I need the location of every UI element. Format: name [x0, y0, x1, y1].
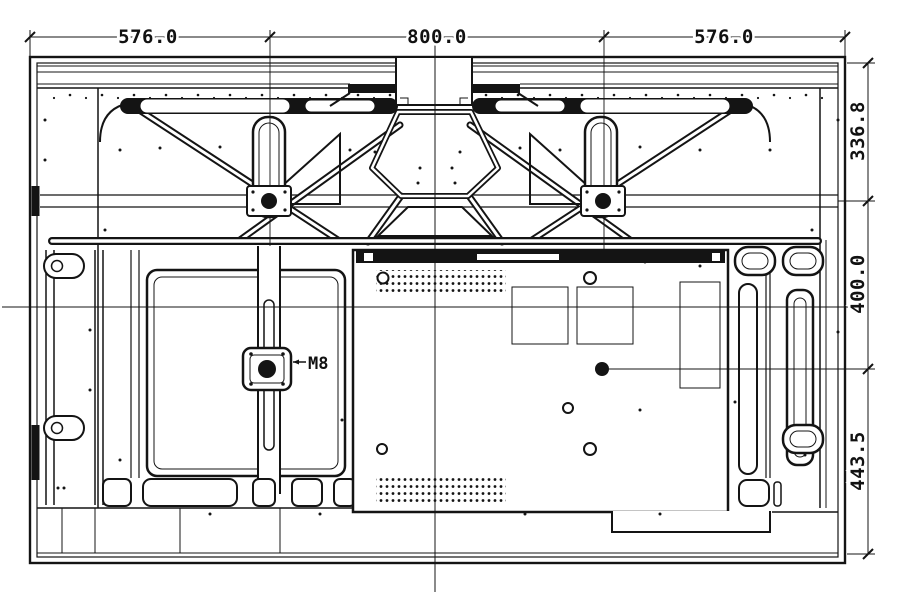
rear-panel-technical-drawing: 576.0 800.0 576.0 336.8 400.0 443.5 M8 — [0, 0, 900, 600]
dim-right-lower: 443.5 — [847, 431, 869, 491]
dim-right-upper: 336.8 — [847, 101, 869, 161]
vesa-mount-upper-left — [247, 186, 291, 216]
lower-left-bracket-assembly — [44, 246, 345, 505]
right-bracket-assembly — [735, 247, 823, 506]
dim-right-middle: 400.0 — [847, 254, 869, 314]
dim-top-left: 576.0 — [118, 26, 178, 48]
vent-hole-array-top — [376, 270, 506, 294]
dim-top-right: 576.0 — [694, 26, 754, 48]
vent-hole-array-bottom — [376, 476, 506, 502]
electronics-compartment — [353, 250, 770, 532]
bottom-bracket-row — [57, 479, 357, 506]
dim-top-center: 800.0 — [407, 26, 467, 48]
vesa-mount-lower-left — [243, 348, 291, 390]
vesa-mount-upper-right — [581, 186, 625, 216]
m8-label: M8 — [308, 354, 328, 374]
